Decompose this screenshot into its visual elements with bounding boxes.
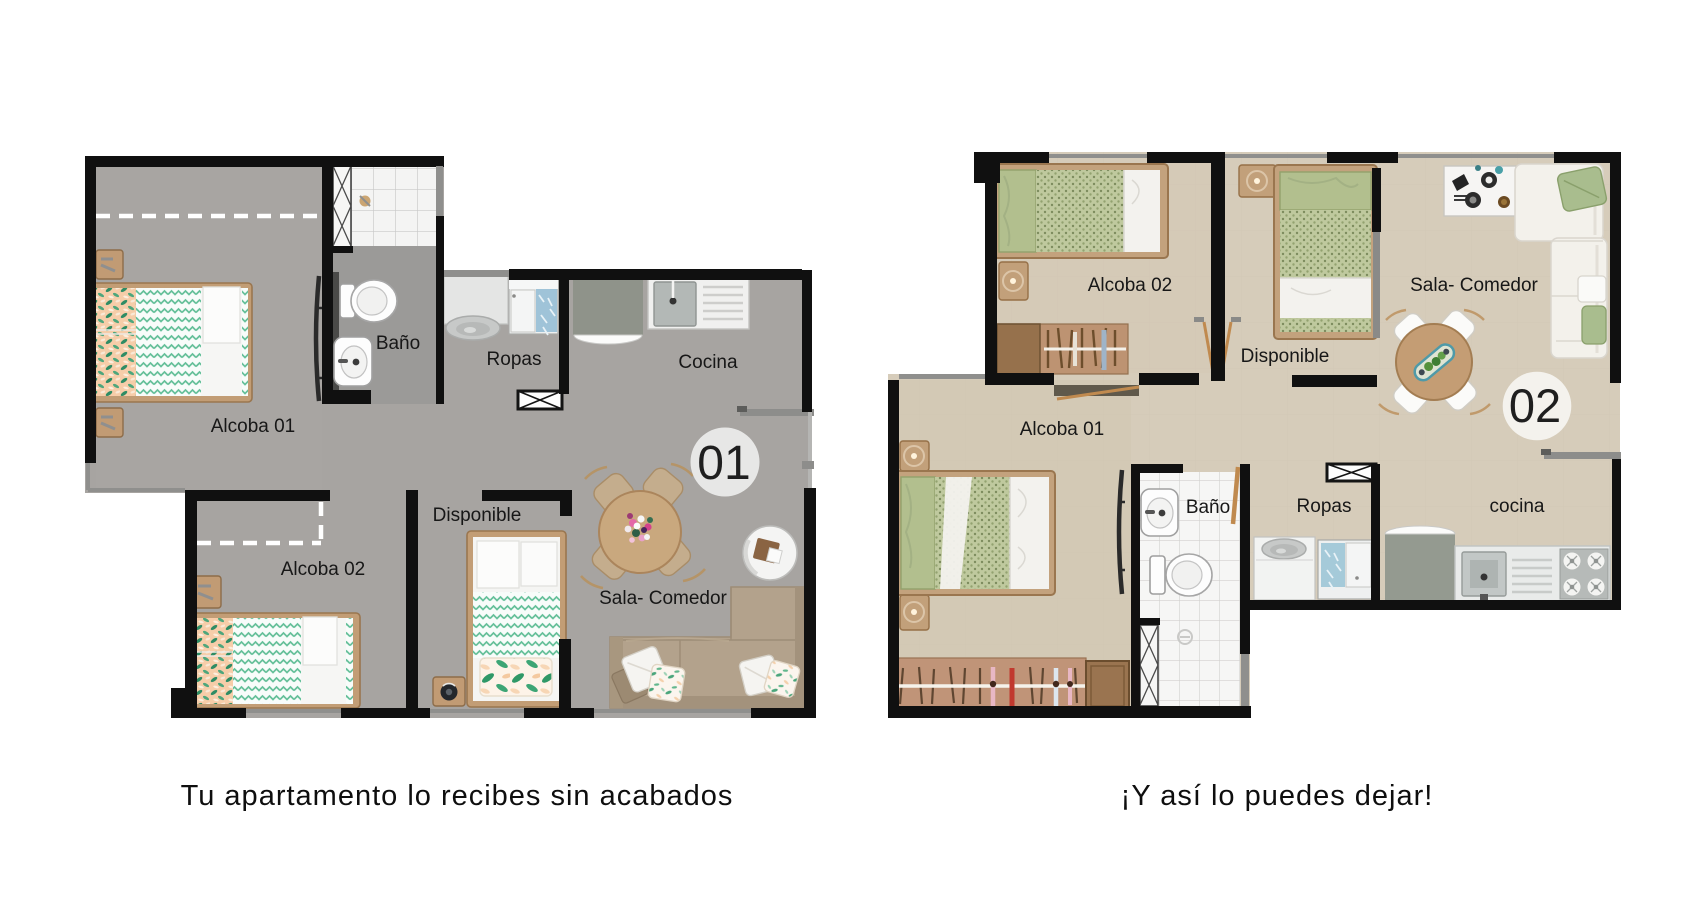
svg-text:Cocina: Cocina: [678, 352, 738, 373]
svg-text:Disponible: Disponible: [1241, 346, 1330, 367]
svg-text:Baño: Baño: [1186, 497, 1230, 518]
svg-text:cocina: cocina: [1490, 496, 1545, 517]
svg-text:01: 01: [697, 437, 750, 490]
svg-text:Sala- Comedor: Sala- Comedor: [1410, 275, 1538, 296]
svg-text:Alcoba 02: Alcoba 02: [1088, 275, 1173, 296]
svg-text:Tu apartamento lo recibes sin: Tu apartamento lo recibes sin acabados: [181, 780, 734, 812]
svg-text:¡Y así lo puedes dejar!: ¡Y así lo puedes dejar!: [1121, 780, 1434, 812]
svg-text:Alcoba 02: Alcoba 02: [281, 559, 366, 580]
svg-text:Alcoba 01: Alcoba 01: [211, 416, 296, 437]
svg-text:Sala- Comedor: Sala- Comedor: [599, 588, 727, 609]
svg-text:Alcoba 01: Alcoba 01: [1020, 419, 1105, 440]
svg-text:Ropas: Ropas: [487, 349, 542, 370]
svg-text:Disponible: Disponible: [433, 505, 522, 526]
svg-text:Baño: Baño: [376, 333, 420, 354]
svg-text:Ropas: Ropas: [1297, 496, 1352, 517]
svg-text:02: 02: [1509, 379, 1561, 432]
